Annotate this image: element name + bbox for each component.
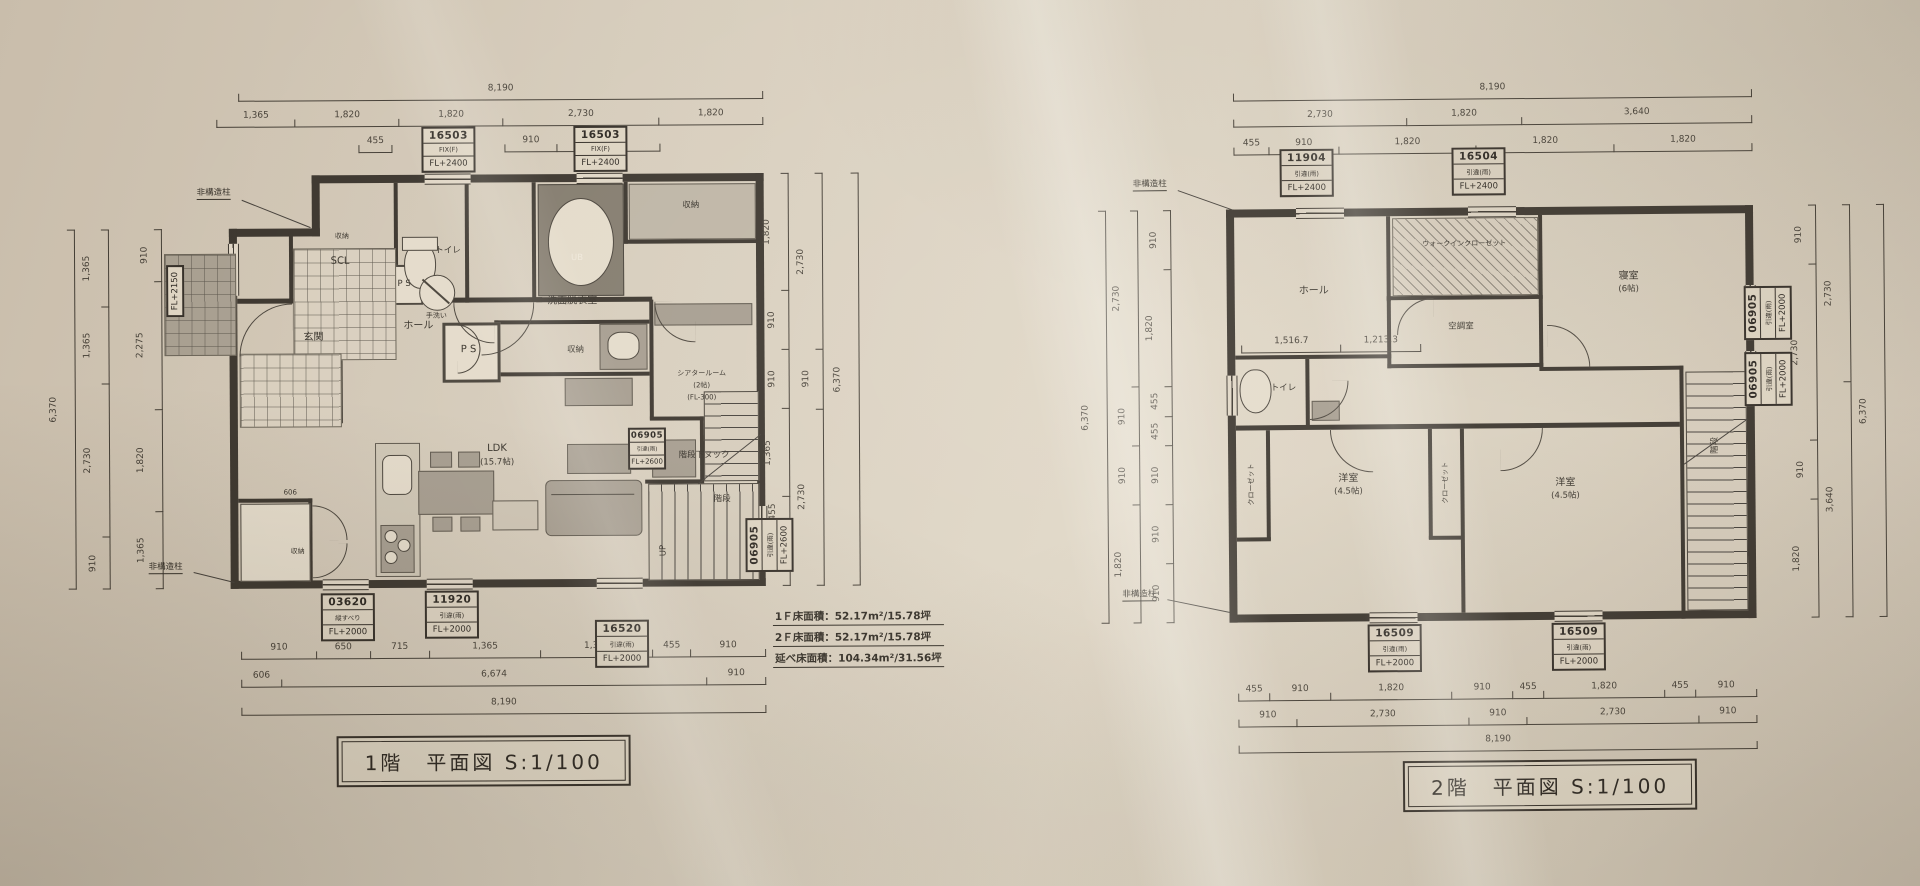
dimension-label: 8,190	[1479, 82, 1505, 92]
f2-wall-closet1	[1266, 430, 1271, 540]
f2-window-left	[1226, 376, 1237, 416]
dimension-label: 2,730	[1307, 110, 1333, 120]
dimension-label: 2,730	[1370, 709, 1396, 719]
dimension-label: 910	[1796, 461, 1806, 478]
f2-wall-hall-wic	[1386, 216, 1391, 301]
dimension-label: 3,640	[1826, 486, 1836, 512]
f2-label-closet1: クローゼット	[1246, 463, 1256, 505]
dimension-label: 1,213.3	[1364, 335, 1398, 345]
f2-wall-closet2-left	[1428, 429, 1433, 539]
dimension-label: 455	[1243, 138, 1260, 148]
f2-label-west1-size: (4.5帖)	[1334, 484, 1363, 496]
f2-toilet-door-arc	[1309, 381, 1348, 420]
dimension-label: 1,820	[1394, 137, 1420, 147]
dimension-label: 910	[1151, 467, 1161, 484]
f2-tag-right2-fl: FL+2000	[1776, 354, 1790, 404]
f2-wic-door-arc	[1397, 298, 1434, 335]
f2-west1-door-arc	[1330, 429, 1373, 472]
floor2-plan: 8,190 2,7301,8203,640 4559101,8201,8201,…	[0, 0, 1920, 886]
f2-dim-bottom-r1: 4559101,8209104551,820455910	[1238, 679, 1757, 702]
f2-tag-right-1: 06905 引違(雨) FL+2000	[1744, 286, 1792, 340]
f2-wall-closet1-btm	[1237, 537, 1271, 541]
f2-wall-closet2-btm	[1429, 536, 1463, 540]
f2-label-hall: ホール	[1299, 281, 1329, 296]
f2-wall-left	[1226, 210, 1238, 623]
f2-window-bottom-1	[1369, 612, 1417, 623]
f2-tag-right1-code: 06905	[1746, 288, 1761, 338]
dimension-label: 910	[1151, 526, 1161, 543]
dimension-label: 2,730	[1824, 280, 1834, 306]
f2-label-west2-size: (4.5帖)	[1551, 489, 1580, 501]
f2-tag-bottom-1: 16509 引違(雨) FL+2000	[1368, 624, 1422, 672]
dimension-label: 910	[1149, 232, 1159, 249]
f2-tag-right1-fl: FL+2000	[1776, 288, 1790, 338]
f2-tag-top2-code: 16504	[1453, 149, 1503, 164]
f2-tag-top2-type: 引違(雨)	[1454, 164, 1504, 179]
dimension-label: 1,820	[1792, 545, 1802, 571]
dimension-label: 2,730	[1600, 707, 1626, 717]
f2-dim-left-outer: 6,370	[1088, 211, 1110, 624]
floor2-title-box: 2階 平面図 S:1/100	[1403, 759, 1698, 813]
f2-label-west1: 洋室	[1338, 469, 1358, 484]
f2-post-top-leader	[1178, 190, 1233, 210]
dimension-label: 8,190	[1485, 734, 1511, 744]
dimension-label: 910	[1474, 682, 1491, 692]
f2-dim-left-mid: 2,7309109101,820	[1120, 210, 1142, 623]
f2-wall-closet2-right	[1460, 429, 1466, 613]
f2-west2-door-arc	[1500, 428, 1543, 471]
dimension-label: 455	[1246, 684, 1263, 694]
f2-label-post-top: 非構造柱	[1133, 177, 1167, 191]
dimension-label: 455	[1672, 681, 1689, 691]
f2-dim-right-inner: 9102,7309101,820	[1798, 205, 1820, 618]
dimension-label: 910	[1292, 684, 1309, 694]
dimension-label: 910	[1794, 226, 1804, 243]
dimension-label: 1,820	[1532, 136, 1558, 146]
f2-label-closet2: クローゼット	[1440, 462, 1450, 504]
f2-tag-b2-fl: FL+2000	[1554, 654, 1604, 668]
f2-toilet-bowl	[1239, 369, 1271, 413]
dimension-label: 1,820	[1114, 551, 1124, 577]
f2-wic-area	[1392, 217, 1539, 296]
dimension-label: 455	[1150, 393, 1160, 410]
f2-post-bottom-leader	[1167, 599, 1230, 613]
dimension-label: 910	[1117, 408, 1127, 425]
f2-label-stair: 階段	[1708, 437, 1720, 454]
f2-window-top-2	[1468, 206, 1516, 217]
dimension-label: 910	[1295, 138, 1312, 148]
f2-label-toilet: トイレ	[1271, 381, 1297, 393]
f2-dim-right-mid: 2,7303,640	[1832, 204, 1854, 617]
f2-dim-bottom-r2: 9102,7309102,730910	[1238, 705, 1757, 728]
photographed-floor-plan-sheet: 8,190 1,3651,8201,8202,7301,820 455 9101…	[0, 0, 1920, 886]
f2-tag-right2-code: 06905	[1746, 354, 1761, 404]
f2-tag-top1-code: 11904	[1281, 151, 1331, 166]
f2-label-aircon: 空調室	[1448, 320, 1474, 332]
dimension-label: 3,640	[1624, 107, 1650, 117]
f2-label-west2: 洋室	[1555, 473, 1575, 488]
f2-tag-b2-code: 16509	[1554, 624, 1604, 639]
f2-wall-stairs-left	[1679, 366, 1685, 619]
f2-bedroom-door-arc	[1547, 324, 1590, 367]
dimension-label: 910	[1719, 706, 1736, 716]
f2-dim-bottom-total: 8,190	[1239, 731, 1758, 754]
f2-wall-aircon-btm	[1387, 363, 1543, 368]
f2-tag-top-2: 16504 引違(雨) FL+2400	[1451, 147, 1505, 195]
f2-dim-internal: 1,516.71,213.3	[1241, 334, 1421, 354]
dimension-label: 910	[1718, 680, 1735, 690]
dimension-label: 455	[1520, 682, 1537, 692]
f2-wall-bedroom-left	[1538, 215, 1543, 367]
dimension-label: 1,820	[1670, 135, 1696, 145]
f2-dim-top-total: 8,190	[1233, 79, 1752, 102]
f2-tag-b1-type: 引違(雨)	[1370, 641, 1420, 656]
f2-label-post-bottom: 非構造柱	[1122, 587, 1156, 601]
f2-tag-right1-type: 引違(雨)	[1761, 288, 1776, 338]
f2-wall-rooms-top	[1236, 422, 1680, 431]
f2-stairs	[1685, 371, 1748, 611]
f2-tag-top1-type: 引違(雨)	[1282, 166, 1332, 181]
dimension-label: 910	[1489, 708, 1506, 718]
dimension-label: 910	[1118, 467, 1128, 484]
f2-tag-right-2: 06905 引違(雨) FL+2000	[1744, 352, 1792, 406]
f2-label-wic: ウォークインクローゼット	[1422, 238, 1506, 249]
f2-wall-hall-btm	[1235, 354, 1391, 359]
dimension-label: 1,820	[1591, 681, 1617, 691]
f2-tag-b1-fl: FL+2000	[1370, 656, 1420, 670]
dimension-label: 2,730	[1112, 286, 1122, 312]
f2-dim-right-outer: 6,370	[1866, 204, 1888, 617]
dimension-label: 1,820	[1451, 108, 1477, 118]
f2-window-bottom-2	[1554, 610, 1602, 621]
f2-tag-top-1: 11904 引違(雨) FL+2400	[1279, 149, 1333, 197]
f2-tag-b1-code: 16509	[1370, 626, 1420, 641]
f2-tag-top2-fl: FL+2400	[1454, 179, 1504, 193]
f2-label-bedroom: 寝室	[1618, 267, 1638, 282]
dimension-label: 6,370	[1859, 398, 1869, 424]
dimension-label: 910	[1259, 710, 1276, 720]
floor2-title: 2階 平面図 S:1/100	[1408, 764, 1693, 807]
f2-tag-bottom-2: 16509 引違(雨) FL+2000	[1552, 622, 1606, 670]
f2-label-bedroom-size: (6帖)	[1618, 282, 1639, 294]
f2-tag-b2-type: 引違(雨)	[1554, 639, 1604, 654]
f2-window-top-1	[1296, 208, 1344, 219]
dimension-label: 1,820	[1145, 315, 1155, 341]
f2-dim-top-chain: 2,7301,8203,640	[1233, 105, 1752, 128]
f2-tag-top1-fl: FL+2400	[1282, 181, 1332, 195]
dimension-label: 455	[1150, 423, 1160, 440]
dimension-label: 6,370	[1081, 404, 1091, 430]
f2-tag-right2-type: 引違(雨)	[1761, 354, 1776, 404]
dimension-label: 1,516.7	[1274, 336, 1308, 346]
dimension-label: 1,820	[1378, 683, 1404, 693]
f2-dim-left-inner: 9101,820455455910910910	[1153, 210, 1175, 623]
f2-wall-bottom	[1230, 610, 1757, 623]
